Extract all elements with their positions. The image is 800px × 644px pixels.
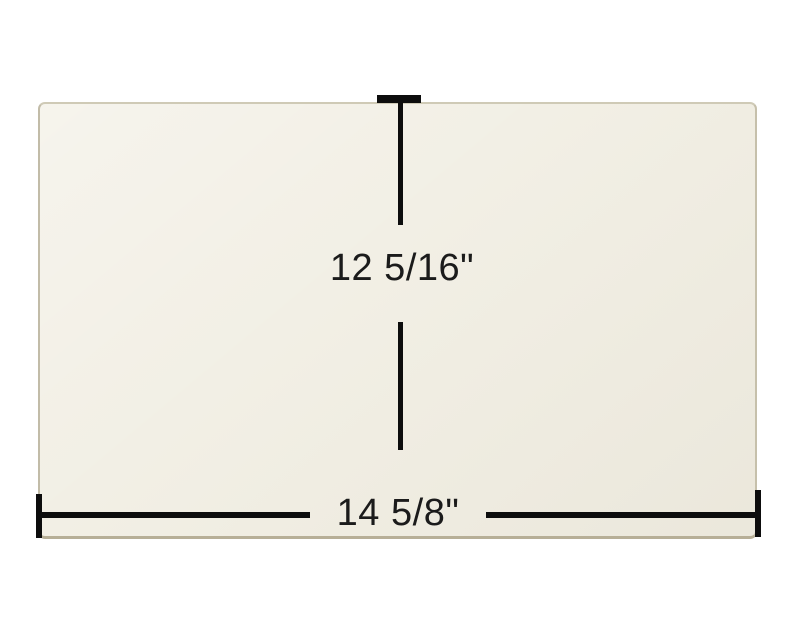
dimension-diagram: 12 5/16" 14 5/8" (0, 0, 800, 644)
height-dimension-line-upper (398, 103, 403, 225)
width-dimension-label: 14 5/8" (323, 490, 473, 536)
height-dimension-top-tick (377, 95, 421, 103)
width-dimension-line-right (486, 512, 757, 518)
height-dimension-label: 12 5/16" (327, 245, 477, 291)
height-dimension-line-lower (398, 322, 403, 450)
width-dimension-line-left (40, 512, 310, 518)
